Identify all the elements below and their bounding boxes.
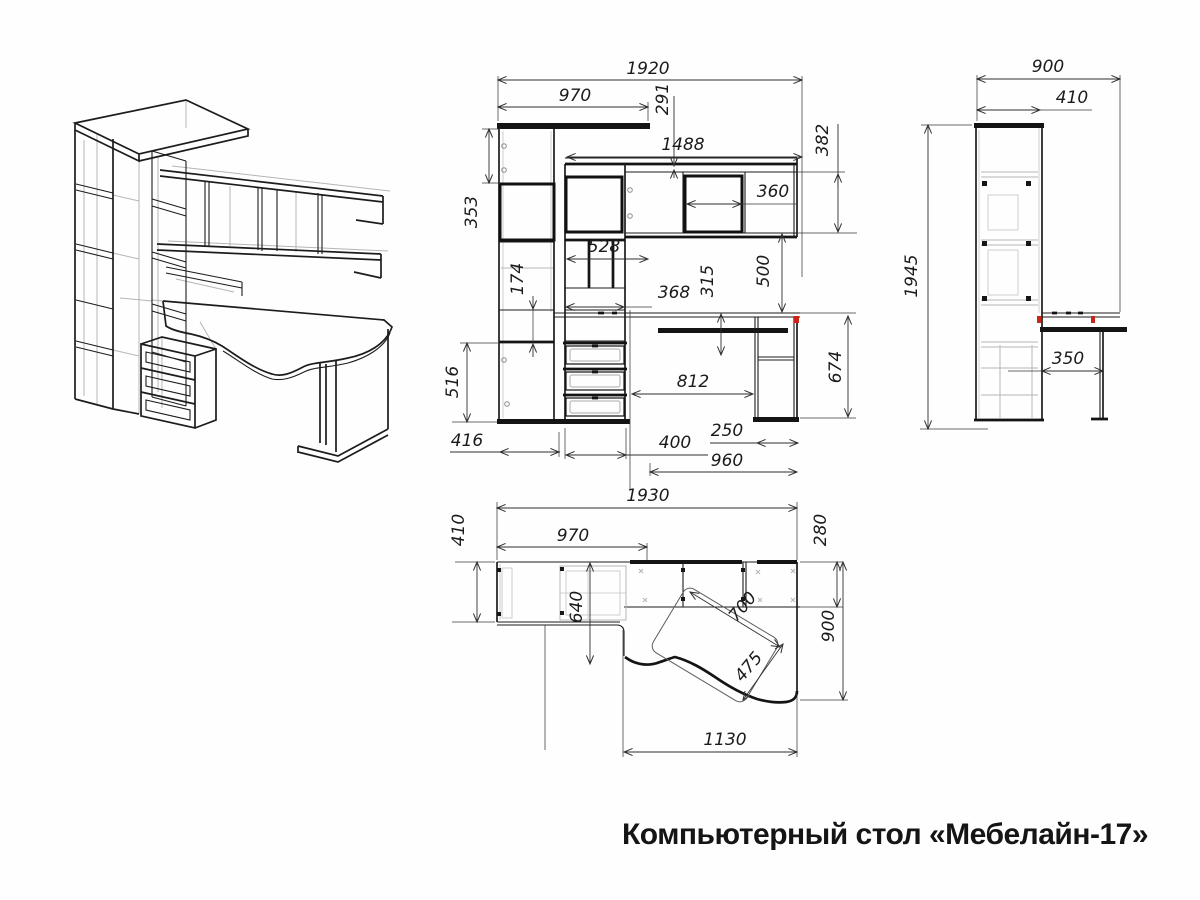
dim-label: 1945 — [902, 254, 922, 297]
top-dimensions: 1930 410 970 280 640 — [449, 486, 843, 752]
dim-label: 1488 — [661, 135, 704, 155]
iso-desk-top — [163, 301, 392, 375]
dim-top-tray-length: 700 — [690, 588, 780, 647]
top-left-detail — [502, 568, 512, 618]
dim-label: 250 — [711, 421, 743, 441]
dim-label: 960 — [711, 451, 743, 471]
dim-label: 970 — [557, 526, 589, 546]
front-open-niche — [500, 184, 554, 240]
dim-side-total-height: 1945 — [902, 125, 988, 429]
dim-label: 900 — [819, 610, 839, 642]
dim-label: 812 — [677, 372, 709, 392]
red-marker — [1037, 316, 1041, 323]
dim-side-cabinet-depth: 410 — [977, 88, 1092, 110]
front-keyboard-shelf — [658, 328, 788, 333]
dim-label: 280 — [811, 514, 831, 546]
dim-label: 410 — [1056, 88, 1088, 108]
drawing-title: Компьютерный стол «Мебелайн-17» — [575, 818, 1195, 852]
top-strip-bottom — [497, 622, 620, 625]
front-tower-edges — [565, 164, 625, 419]
hinge-icon — [502, 144, 507, 149]
front-top-shelf — [497, 123, 650, 129]
dim-label: 410 — [449, 514, 469, 546]
dim-label: 291 — [653, 83, 673, 115]
isometric-view — [75, 100, 392, 462]
dim-front-total-width: 1920 — [498, 59, 802, 121]
dim-label: 516 — [443, 366, 463, 399]
dim-front-drawer-unit-width: 400 — [565, 428, 708, 459]
front-view: 1920 970 291 1488 382 — [443, 59, 857, 490]
iso-drawer-fronts — [146, 352, 190, 420]
side-internal-detail — [988, 195, 1018, 230]
dim-top-tower-depth: 640 — [567, 563, 590, 664]
dim-label: 1130 — [703, 730, 746, 750]
dim-front-column-width: 416 — [450, 431, 560, 457]
iso-hidden-lines — [84, 100, 390, 414]
dim-label: 368 — [658, 283, 691, 303]
blueprint-page: 1920 970 291 1488 382 — [0, 0, 1200, 900]
dim-front-desk-height: 674 — [800, 313, 856, 418]
dim-front-leg-width: 250 — [710, 421, 798, 443]
top-back-edge-thick — [630, 560, 742, 564]
dim-side-total-depth: 900 — [977, 57, 1120, 121]
front-drawers — [563, 343, 630, 424]
iso-desk-edge-thickness — [223, 333, 390, 380]
dim-label: 353 — [462, 196, 482, 228]
hinge-icon — [502, 168, 507, 173]
iso-shelf-dividers — [166, 182, 322, 296]
iso-left-column-shelves — [76, 184, 113, 356]
hinge-icon — [502, 358, 507, 363]
dim-top-shelf-width: 970 — [497, 526, 647, 560]
dim-label: 900 — [1032, 57, 1064, 77]
dim-label: 382 — [813, 124, 833, 156]
dim-front-knee-space: 812 — [632, 372, 753, 394]
front-tower-shelves — [565, 288, 625, 341]
side-connectors — [982, 181, 1031, 301]
red-marker — [1091, 316, 1095, 323]
top-fitting-marks — [639, 569, 795, 602]
side-keyboard-shelf — [1040, 327, 1127, 332]
dim-label: 400 — [659, 433, 691, 453]
dim-front-shelf-unit-height: 382 — [797, 124, 857, 233]
dim-label: 360 — [757, 182, 789, 202]
dim-front-top-shelf-width: 970 — [498, 86, 648, 121]
top-view: 1930 410 970 280 640 — [449, 486, 848, 757]
dim-label: 970 — [559, 86, 591, 106]
dim-front-tower-width: 368 — [566, 283, 690, 307]
top-connectors — [497, 567, 745, 616]
red-marker — [794, 316, 799, 323]
dim-label: 1920 — [626, 59, 669, 79]
dim-top-strip-depth: 410 — [449, 514, 495, 622]
iso-left-column — [75, 130, 139, 414]
front-tower-compartment — [566, 177, 622, 232]
dim-front-door-height: 516 — [443, 343, 500, 422]
dim-label: 674 — [826, 351, 846, 383]
side-dimensions: 900 410 1945 350 — [902, 57, 1120, 429]
top-body — [497, 560, 848, 757]
dim-label: 528 — [588, 237, 621, 257]
dim-front-top-section: 353 — [462, 129, 500, 228]
top-front-curve — [625, 657, 797, 702]
top-keyboard-tray — [649, 585, 781, 705]
top-back-edge-thick2 — [757, 560, 797, 564]
drawing-sheet: 1920 970 291 1488 382 — [0, 0, 1200, 900]
dim-front-shelves-span: 1488 — [567, 135, 802, 157]
side-body — [974, 75, 1127, 420]
dim-label: 640 — [567, 591, 587, 623]
dim-top-desk-depth: 900 — [819, 562, 843, 700]
dim-label: 416 — [451, 431, 484, 451]
dim-label: 475 — [731, 648, 767, 686]
front-leg-plinth — [753, 417, 799, 422]
dim-label: 174 — [508, 263, 528, 295]
side-view: 900 410 1945 350 — [902, 57, 1127, 429]
dim-front-desk-to-tray: 315 — [698, 265, 721, 355]
hinge-icon — [628, 214, 633, 219]
dim-front-shelf-to-desk: 500 — [754, 234, 782, 312]
hinge-icon — [628, 188, 633, 193]
side-cabinet-top — [974, 123, 1044, 128]
iso-canopy — [75, 100, 248, 161]
dim-label: 350 — [1052, 349, 1084, 369]
dim-top-shelf-strip-depth: 280 — [800, 514, 843, 607]
dim-top-desk-width: 1130 — [624, 730, 797, 752]
door-handle-icon — [505, 402, 510, 407]
iso-right-leg — [298, 329, 388, 462]
dim-label: 315 — [698, 265, 718, 297]
dim-label: 500 — [754, 255, 774, 287]
dim-label: 1930 — [626, 486, 669, 506]
dim-label: 700 — [725, 588, 761, 626]
side-internal-detail — [988, 250, 1018, 295]
front-desk-surface — [554, 313, 800, 317]
